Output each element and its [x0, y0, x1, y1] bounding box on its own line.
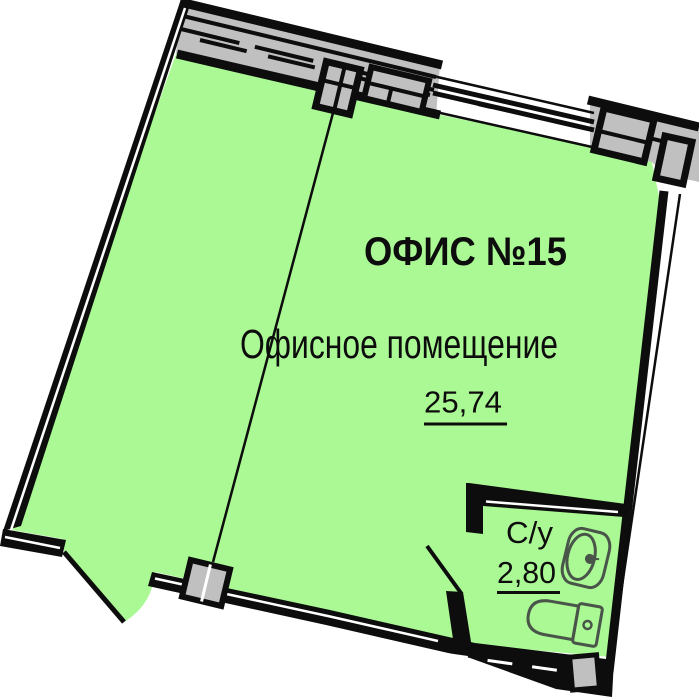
svg-text:ОФИС №15: ОФИС №15	[364, 230, 567, 274]
svg-text:Офисное помещение: Офисное помещение	[240, 321, 558, 367]
svg-text:С/у: С/у	[506, 515, 554, 550]
svg-text:2,80: 2,80	[497, 555, 556, 590]
svg-text:25,74: 25,74	[424, 385, 502, 420]
